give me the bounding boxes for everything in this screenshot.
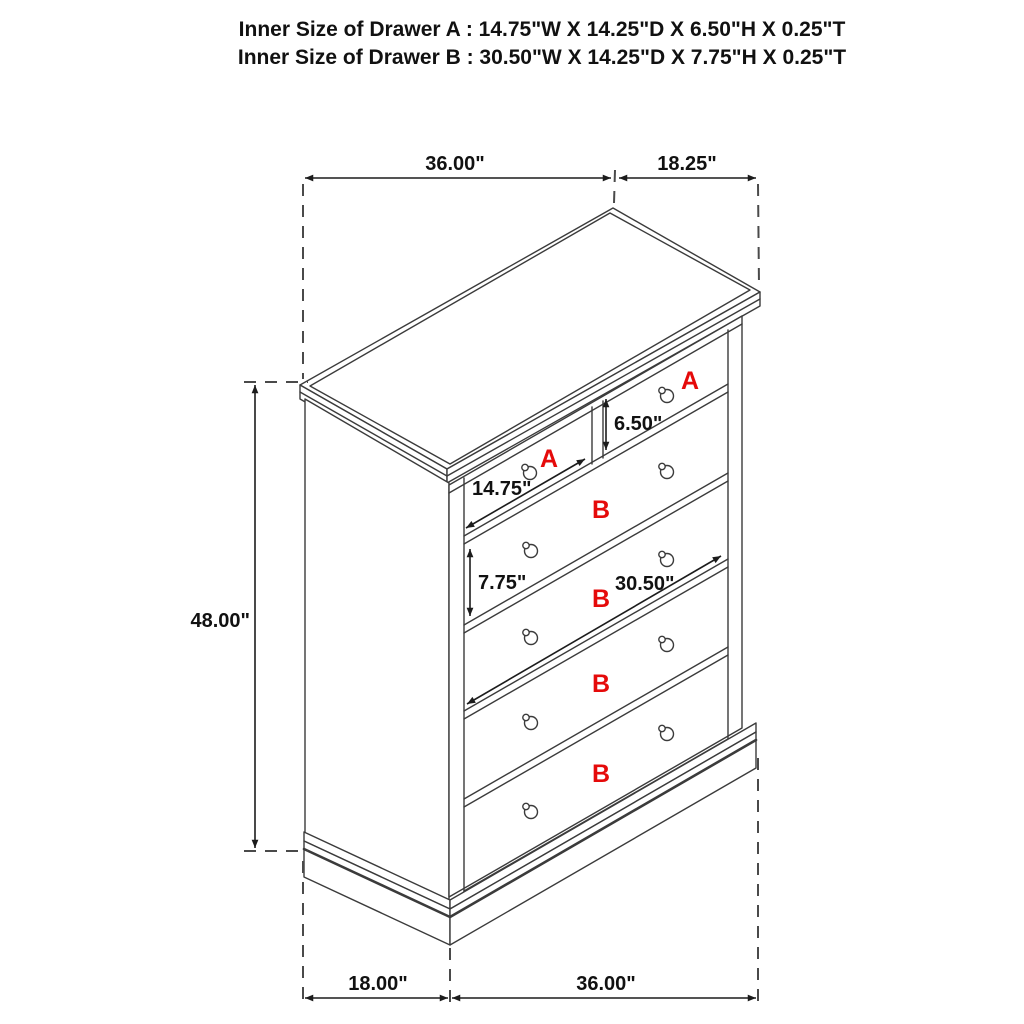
diagram-page: Inner Size of Drawer A : 14.75"W X 14.25… bbox=[0, 0, 1024, 1024]
drawer-a-left-label: A bbox=[540, 445, 558, 473]
side-panel bbox=[305, 399, 449, 908]
drawer-b2-label: B bbox=[592, 585, 610, 613]
drawer-b1-label: B bbox=[592, 496, 610, 524]
dim-drawer-a-width-label: 14.75" bbox=[472, 478, 532, 500]
dresser-diagram: 36.00" 18.25" 48.00" 18.00" 36.00" 6.50"… bbox=[0, 0, 1024, 1024]
ext-top-right bbox=[758, 184, 759, 286]
ext-top-middle bbox=[614, 170, 615, 203]
dim-bottom-width-label: 36.00" bbox=[576, 973, 636, 995]
drawer-a-right-label: A bbox=[681, 367, 699, 395]
dim-drawer-a-height-label: 6.50" bbox=[614, 413, 662, 435]
dim-height-label: 48.00" bbox=[190, 610, 250, 632]
dim-drawer-b-width-label: 30.50" bbox=[615, 573, 675, 595]
dresser bbox=[300, 208, 760, 945]
drawer-b3-label: B bbox=[592, 670, 610, 698]
dim-top-width-label: 36.00" bbox=[425, 153, 485, 175]
dim-top-depth-label: 18.25" bbox=[657, 153, 717, 175]
dim-bottom-depth-label: 18.00" bbox=[348, 973, 408, 995]
dim-drawer-b-height-label: 7.75" bbox=[478, 572, 526, 594]
drawer-b4-label: B bbox=[592, 760, 610, 788]
